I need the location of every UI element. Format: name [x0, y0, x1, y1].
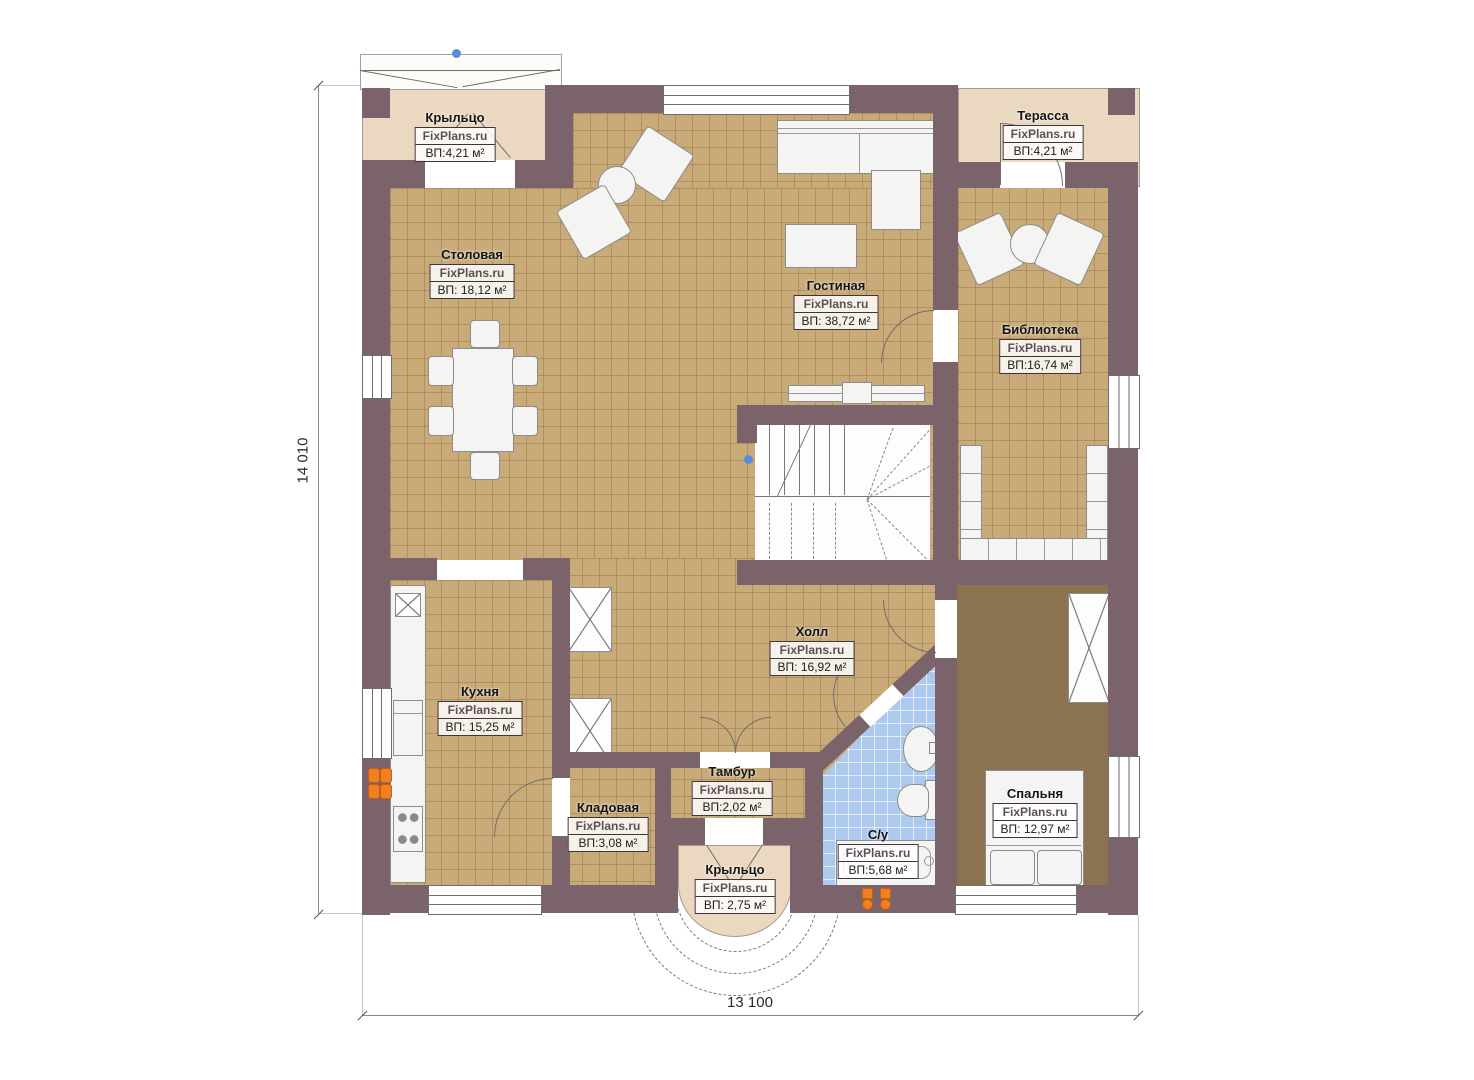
- wall: [933, 85, 958, 310]
- wall: [737, 405, 757, 443]
- room-label-bathroom: С/у FixPlans.ru ВП:5,68 м²: [838, 827, 919, 879]
- stair-dashed-step: [769, 503, 770, 559]
- stair-step-line: [844, 425, 845, 495]
- room-label-vestibule: Тамбур FixPlans.ru ВП:2,02 м²: [692, 764, 773, 816]
- room-label-terrace: Терасса FixPlans.ru ВП:4,21 м²: [1003, 108, 1084, 160]
- wall: [763, 818, 790, 845]
- room-area: ВП:4,21 м²: [416, 145, 495, 161]
- utility-marker-orange: [368, 784, 380, 799]
- staircase: [755, 425, 930, 560]
- sofa: [777, 120, 942, 174]
- dining-chair: [470, 320, 500, 348]
- wall: [678, 818, 705, 845]
- room-label-bedroom: Спальня FixPlans.ru ВП: 12,97 м²: [993, 786, 1078, 838]
- stair-marker-dot: [744, 455, 753, 464]
- room-info-box: FixPlans.ru ВП:4,21 м²: [1003, 125, 1084, 160]
- watermark-text: FixPlans.ru: [569, 818, 648, 835]
- stair-step-line: [814, 425, 815, 495]
- window: [955, 885, 1077, 915]
- window: [362, 355, 392, 399]
- room-info-box: FixPlans.ru ВП: 15,25 м²: [438, 701, 523, 736]
- wall: [790, 818, 810, 913]
- wall: [935, 585, 957, 600]
- dimension-extension: [362, 915, 363, 1015]
- room-area: ВП:2,02 м²: [693, 799, 772, 815]
- room-label-kitchen: Кухня FixPlans.ru ВП: 15,25 м²: [438, 684, 523, 736]
- wall: [1108, 447, 1138, 756]
- radiator-center-box: [842, 382, 872, 404]
- bathtub-drain: [924, 856, 934, 866]
- watermark-text: FixPlans.ru: [416, 128, 495, 145]
- room-info-box: FixPlans.ru ВП: 16,92 м²: [770, 641, 855, 676]
- window: [428, 885, 542, 915]
- room-area: ВП: 2,75 м²: [696, 897, 775, 913]
- wall: [935, 658, 957, 885]
- wall: [552, 752, 700, 768]
- room-name: Библиотека: [999, 322, 1081, 337]
- stove: [393, 806, 423, 852]
- room-name: Столовая: [430, 247, 515, 262]
- wardrobe: [1068, 593, 1110, 703]
- floor-plan-canvas: Крыльцо FixPlans.ru ВП:4,21 м² Терасса F…: [0, 0, 1474, 1080]
- wall: [362, 88, 390, 118]
- coffee-table: [785, 224, 857, 268]
- wall: [737, 405, 935, 425]
- room-name: Терасса: [1003, 108, 1084, 123]
- door-opening: [933, 310, 958, 362]
- bed-pillow: [990, 850, 1035, 885]
- room-name: Холл: [770, 624, 855, 639]
- dimension-line-vertical: [318, 85, 319, 915]
- stair-step-line: [829, 425, 830, 495]
- dining-table: [452, 348, 514, 452]
- room-name: Крыльцо: [415, 110, 496, 125]
- bed-blanket-line: [986, 845, 1081, 846]
- wall: [958, 162, 1000, 188]
- dining-chair: [512, 406, 538, 436]
- room-area: ВП:4,21 м²: [1004, 143, 1083, 159]
- watermark-text: FixPlans.ru: [771, 642, 854, 659]
- watermark-text: FixPlans.ru: [795, 296, 878, 313]
- window: [663, 85, 850, 115]
- utility-marker-orange: [880, 899, 891, 910]
- wall: [552, 558, 570, 778]
- canopy-line: [360, 70, 560, 71]
- stair-dashed-step: [813, 503, 814, 559]
- sofa-chaise: [871, 170, 921, 230]
- room-area: ВП: 18,12 м²: [431, 282, 514, 298]
- room-area: ВП:16,74 м²: [1000, 357, 1080, 373]
- room-label-pantry: Кладовая FixPlans.ru ВП:3,08 м²: [568, 800, 649, 852]
- room-info-box: FixPlans.ru ВП:3,08 м²: [568, 817, 649, 852]
- room-area: ВП:5,68 м²: [839, 862, 918, 878]
- wall: [933, 362, 958, 585]
- room-label-porch-bottom: Крыльцо FixPlans.ru ВП: 2,75 м²: [695, 862, 776, 914]
- wall: [515, 160, 545, 188]
- wall: [1108, 185, 1138, 375]
- room-area: ВП: 15,25 м²: [439, 719, 522, 735]
- stair-dashed-step: [835, 503, 836, 559]
- stair-dashed-step: [791, 503, 792, 559]
- stair-step-line: [799, 425, 800, 495]
- room-name: Кладовая: [568, 800, 649, 815]
- dimension-extension: [1138, 915, 1139, 1015]
- dimension-width-label: 13 100: [700, 994, 800, 1011]
- dining-chair: [428, 406, 454, 436]
- utility-marker-orange: [862, 888, 873, 899]
- window: [362, 688, 392, 759]
- room-area: ВП: 16,92 м²: [771, 659, 854, 675]
- stair-landing-line: [755, 496, 930, 497]
- room-label-hall: Холл FixPlans.ru ВП: 16,92 м²: [770, 624, 855, 676]
- dining-chair: [428, 356, 454, 386]
- wall: [770, 752, 810, 768]
- terrace-pillar: [1108, 88, 1135, 115]
- room-info-box: FixPlans.ru ВП: 18,12 м²: [430, 264, 515, 299]
- room-name: Спальня: [993, 786, 1078, 801]
- room-info-box: FixPlans.ru ВП:16,74 м²: [999, 339, 1081, 374]
- room-name: С/у: [838, 827, 919, 842]
- dining-chair: [470, 452, 500, 480]
- window: [1108, 375, 1140, 449]
- utility-marker-orange: [380, 768, 392, 783]
- door-opening: [705, 818, 763, 845]
- stair-fan-line: [867, 430, 930, 500]
- utility-marker-orange: [380, 784, 392, 799]
- vent-shaft: [568, 587, 612, 652]
- dimension-extension: [318, 913, 362, 914]
- dimension-line-horizontal: [362, 1015, 1138, 1016]
- watermark-text: FixPlans.ru: [439, 702, 522, 719]
- room-area: ВП:3,08 м²: [569, 835, 648, 851]
- room-info-box: FixPlans.ru ВП: 2,75 м²: [695, 879, 776, 914]
- room-info-box: FixPlans.ru ВП:5,68 м²: [838, 844, 919, 879]
- utility-marker-orange: [368, 768, 380, 783]
- room-name: Гостиная: [794, 278, 879, 293]
- room-info-box: FixPlans.ru ВП: 12,97 м²: [993, 803, 1078, 838]
- room-info-box: FixPlans.ru ВП:2,02 м²: [692, 781, 773, 816]
- room-label-dining: Столовая FixPlans.ru ВП: 18,12 м²: [430, 247, 515, 299]
- wall: [573, 85, 663, 113]
- door-opening: [425, 160, 515, 188]
- stair-step-line: [784, 425, 785, 495]
- wall: [390, 558, 437, 580]
- room-name: Тамбур: [692, 764, 773, 779]
- room-label-living: Гостиная FixPlans.ru ВП: 38,72 м²: [794, 278, 879, 330]
- stair-break-line: [777, 425, 811, 496]
- room-label-porch-top: Крыльцо FixPlans.ru ВП:4,21 м²: [415, 110, 496, 162]
- room-name: Кухня: [438, 684, 523, 699]
- wall: [362, 397, 390, 688]
- utility-marker-orange: [880, 888, 891, 899]
- room-info-box: FixPlans.ru ВП: 38,72 м²: [794, 295, 879, 330]
- watermark-text: FixPlans.ru: [696, 880, 775, 897]
- wall: [545, 85, 573, 188]
- stair-fan-line: [867, 428, 894, 500]
- window: [1108, 756, 1140, 838]
- watermark-text: FixPlans.ru: [994, 804, 1077, 821]
- dimension-height-label: 14 010: [295, 426, 312, 496]
- room-info-box: FixPlans.ru ВП:4,21 м²: [415, 127, 496, 162]
- canopy-marker-dot: [452, 49, 461, 58]
- watermark-text: FixPlans.ru: [431, 265, 514, 282]
- utility-marker-orange: [862, 899, 873, 910]
- room-name: Крыльцо: [695, 862, 776, 877]
- room-label-library: Библиотека FixPlans.ru ВП:16,74 м²: [999, 322, 1081, 374]
- stair-step-line: [769, 425, 770, 495]
- watermark-text: FixPlans.ru: [693, 782, 772, 799]
- dining-chair: [512, 356, 538, 386]
- watermark-text: FixPlans.ru: [1000, 340, 1080, 357]
- wall: [362, 160, 390, 355]
- wall: [362, 885, 428, 913]
- watermark-text: FixPlans.ru: [839, 845, 918, 862]
- wall: [1108, 836, 1138, 915]
- wall: [655, 818, 678, 913]
- bed-pillow: [1037, 850, 1082, 885]
- toilet-bowl: [897, 784, 929, 817]
- canopy-outline: [360, 54, 562, 90]
- wall: [737, 560, 1108, 585]
- kitchen-sink: [395, 593, 421, 617]
- dimension-extension: [318, 85, 362, 86]
- door-opening: [935, 600, 957, 658]
- room-area: ВП: 12,97 м²: [994, 821, 1077, 837]
- fridge: [393, 700, 423, 756]
- watermark-text: FixPlans.ru: [1004, 126, 1083, 143]
- room-area: ВП: 38,72 м²: [795, 313, 878, 329]
